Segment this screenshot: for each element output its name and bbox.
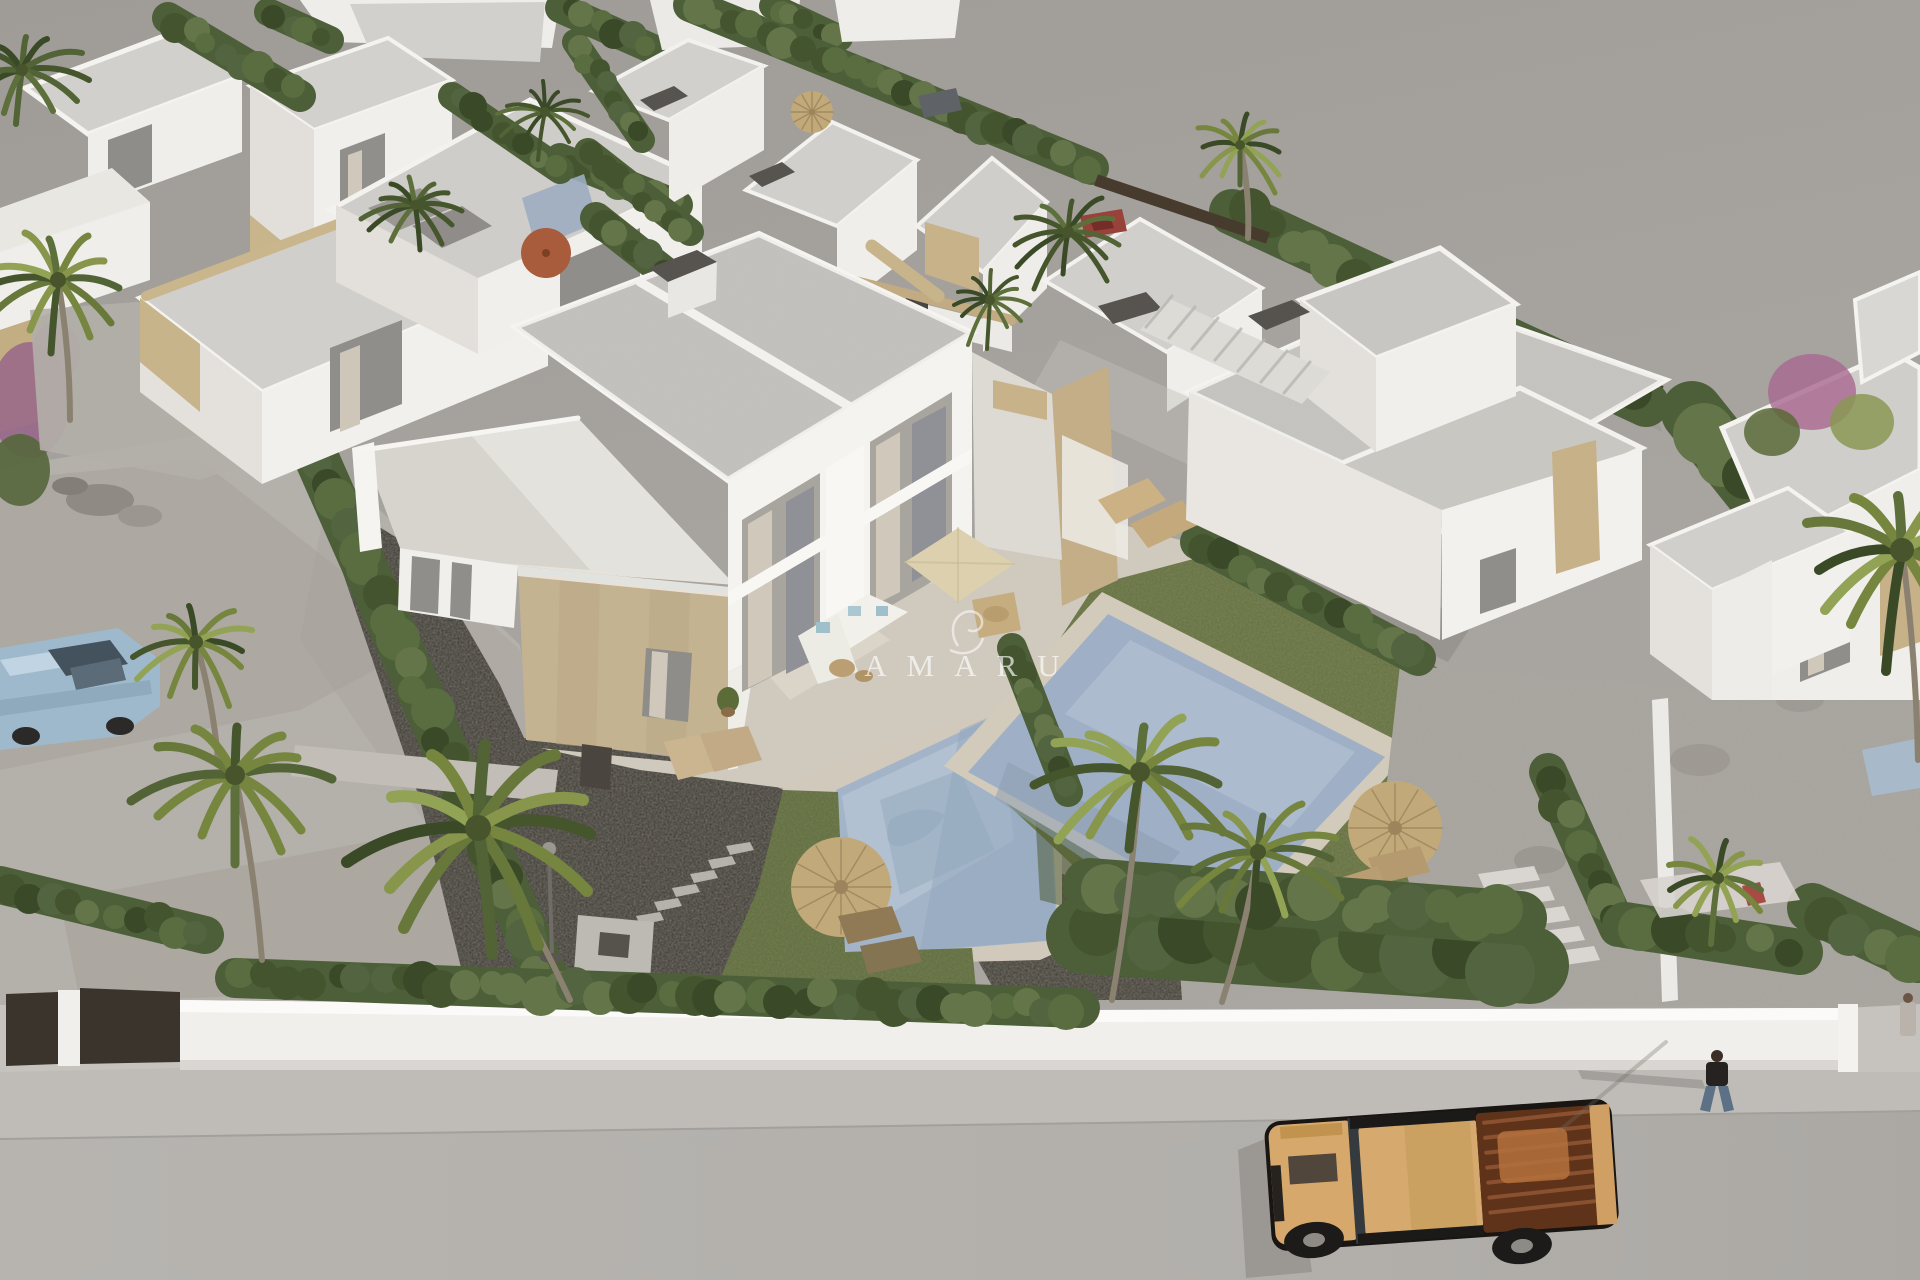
svg-text:AMARU: AMARU bbox=[864, 648, 1079, 683]
